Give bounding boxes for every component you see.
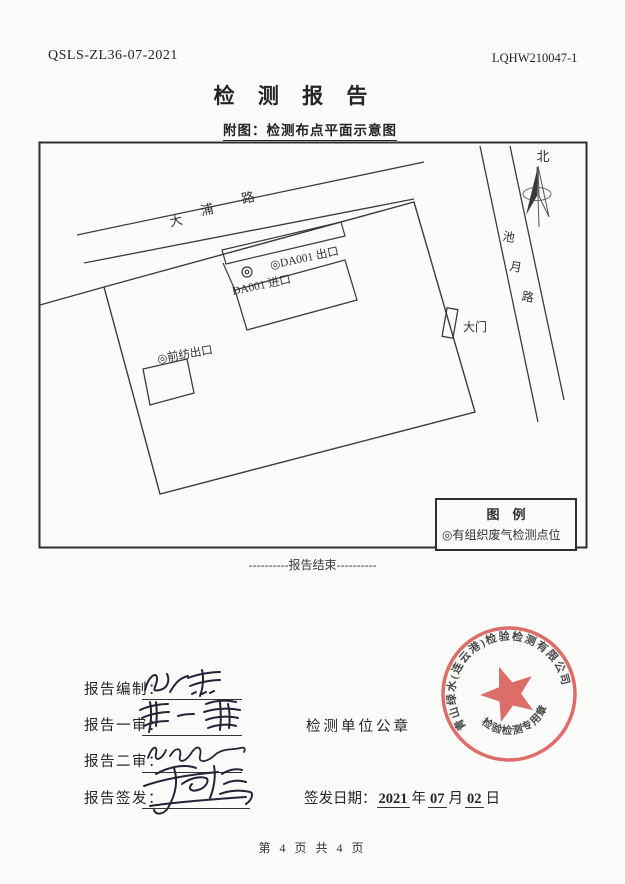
legend-title: 图 例 [486,507,525,522]
legend-item: ◎有组织废气检测点位 [442,527,560,542]
site-plan-diagram: 大 浦 路 池 月 路 北 ◎DA001 出口 [38,141,588,553]
figure-caption-wrap: 附图：检测布点平面示意图 [0,119,620,141]
road-dapu-char2: 浦 [199,201,215,219]
road-chiyue [480,146,564,422]
label-da001-inlet: DA001 进口 [231,273,292,298]
page-title: 检 测 报 告 [0,80,590,110]
issue-date-day-unit: 日 [484,791,503,807]
road-dapu [77,162,424,263]
signature-first-review [136,696,256,738]
issue-date-row: 签发日期：2021年07月02日 [304,787,502,808]
factory-boundary [104,202,475,494]
issue-date-month-unit: 月 [447,791,466,807]
document-code: QSLS-ZL36-07-2021 [48,48,178,64]
north-label: 北 [536,149,549,164]
north-arrow-icon [523,166,551,227]
building-da001 [235,260,357,330]
signature-issued-by [126,760,261,822]
monitor-point-icon [242,267,252,277]
legend-box: 图 例 ◎有组织废气检测点位 [436,499,576,550]
label-qianfang-outlet: ◎前纺出口 [156,342,214,366]
issue-date-day: 02 [465,791,484,808]
road-chiyue-char3: 路 [521,288,535,305]
report-end-marker: ----------报告结束---------- [0,556,625,573]
report-page: QSLS-ZL36-07-2021 LQHW210047-1 检 测 报 告 附… [0,0,625,884]
diagram-frame [40,143,587,548]
company-stamp-seal: 青山绿水(连云港)检验检测有限公司 检验检测专用章 [424,612,594,782]
figure-caption: 附图：检测布点平面示意图 [223,119,397,141]
boundary-extension-line [40,287,104,305]
issue-date-year-unit: 年 [410,791,429,807]
issue-date-year: 2021 [377,791,410,808]
stamp-star-icon [473,657,543,725]
building-qianfang [143,359,194,405]
road-dapu-char1: 大 [168,212,184,230]
issue-date-label: 签发日期： [304,791,377,807]
road-chiyue-char1: 池 [502,229,516,245]
label-gate: 大门 [463,319,487,334]
report-number: LQHW210047-1 [492,51,577,66]
label-da001-outlet: ◎DA001 出口 [269,244,340,272]
road-dapu-char3: 路 [240,189,256,207]
seal-caption: 检测单位公章 [306,715,411,736]
issue-date-month: 07 [428,791,447,808]
page-number-footer: 第 4 页 共 4 页 [0,839,625,856]
gate-rect [442,308,458,338]
road-chiyue-char2: 月 [509,259,523,275]
